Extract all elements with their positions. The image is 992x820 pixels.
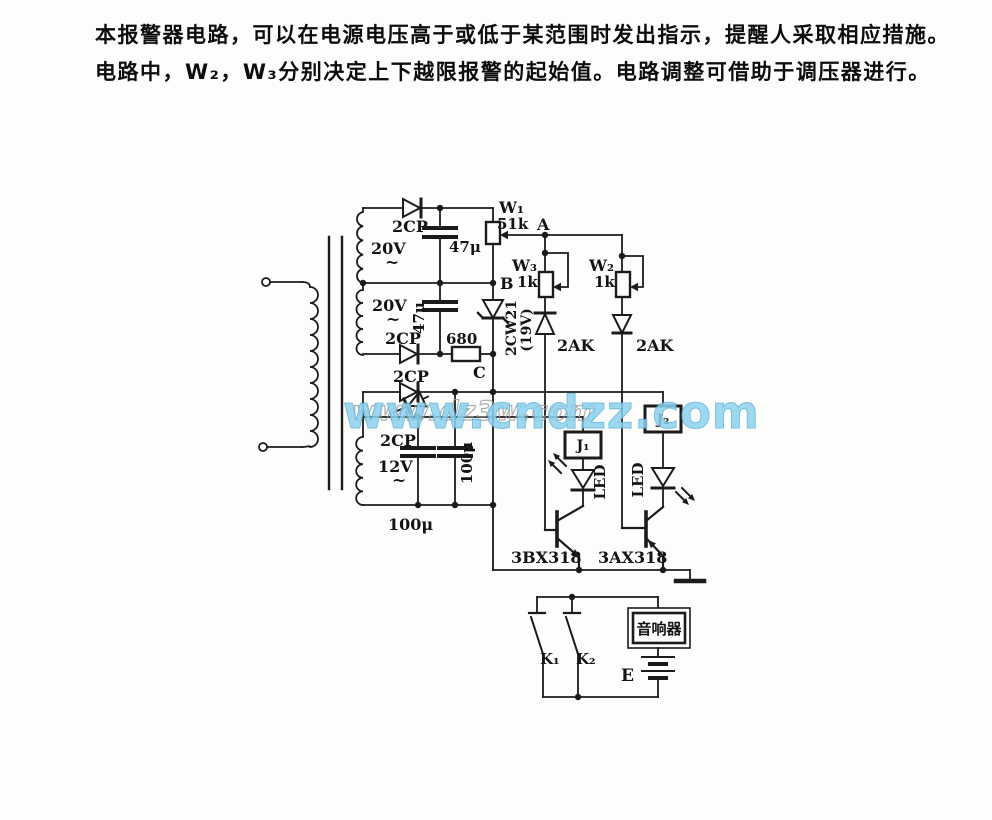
primary-winding <box>302 282 318 447</box>
primary-terminal-bottom <box>259 443 267 451</box>
comparator-low-branch: W₃ 1k 2AK <box>511 235 596 530</box>
led-high-label: LED <box>629 463 647 498</box>
ground-rail <box>493 570 704 581</box>
secondary-winding-mid <box>357 283 363 355</box>
resistor-680 <box>452 347 480 361</box>
rectifier-mid-rail: 2CP 680 47μ <box>363 283 493 363</box>
diode-2cp-top <box>403 199 421 217</box>
cap-47u-top-label: 47μ <box>449 238 481 256</box>
pot-w2 <box>616 272 630 297</box>
relay-j1-label: J₁ <box>575 438 590 454</box>
alarm-circuit-schematic: 20V ~ 20V ~ 12V ~ 2CP 47μ <box>0 0 992 820</box>
resistor-680-label: 680 <box>446 330 477 348</box>
diode-2ak-high-label: 2AK <box>636 336 675 355</box>
led-high <box>652 468 695 507</box>
sounder-label: 音响器 <box>636 620 682 638</box>
pot-w3-value: 1k <box>517 273 538 291</box>
cap-47u-mid-label: 47μ <box>410 302 428 334</box>
pot-w3 <box>539 272 553 297</box>
pot-w2-wiper-arrow <box>630 283 638 291</box>
pot-w3-wiper-arrow <box>553 283 561 291</box>
switch-k1-label: K₁ <box>540 650 560 668</box>
secondary-winding-top <box>357 208 363 283</box>
switch-k2-label: K₂ <box>576 650 596 668</box>
cap-100u-2-label: 100μ <box>458 442 476 484</box>
transformer: 20V ~ 20V ~ 12V ~ <box>259 208 413 505</box>
zener-label: 2CW21 <box>504 300 520 356</box>
transistor-3ax318-label: 3AX318 <box>598 548 667 567</box>
switch-k1-blade <box>531 617 543 654</box>
node-a-label: A <box>536 215 550 234</box>
watermark-big: www.cndzz.com <box>343 386 760 439</box>
driver-low: J₁ LED 3BX318 <box>511 432 609 570</box>
winding-bottom-ac: ~ <box>392 471 406 491</box>
battery-e <box>642 648 674 697</box>
switch-k2-blade <box>566 617 578 654</box>
battery-e-label: E <box>621 666 634 686</box>
alarm-loop: K₁ K₂ 音响器 E <box>529 597 690 697</box>
cap-100u-1-label: 100μ <box>388 515 433 534</box>
transistor-3bx318-label: 3BX318 <box>511 548 581 567</box>
node-b-label: B <box>500 274 514 293</box>
led-low-label: LED <box>591 465 609 500</box>
pot-w1-value: 51k <box>497 215 529 233</box>
diode-2cp-low1-label: 2CP <box>393 367 429 386</box>
primary-terminal-top <box>262 278 270 286</box>
led-low <box>548 453 594 506</box>
pot-w2-value: 1k <box>594 273 615 291</box>
node-c-label: C <box>473 363 486 382</box>
zener-voltage-label: (19V) <box>519 308 535 352</box>
diode-2ak-low <box>535 313 555 334</box>
winding-top-ac: ~ <box>385 253 399 273</box>
winding-mid-ac: ~ <box>386 310 400 330</box>
diode-2ak-low-label: 2AK <box>557 336 596 355</box>
diode-2ak-high <box>613 315 631 333</box>
